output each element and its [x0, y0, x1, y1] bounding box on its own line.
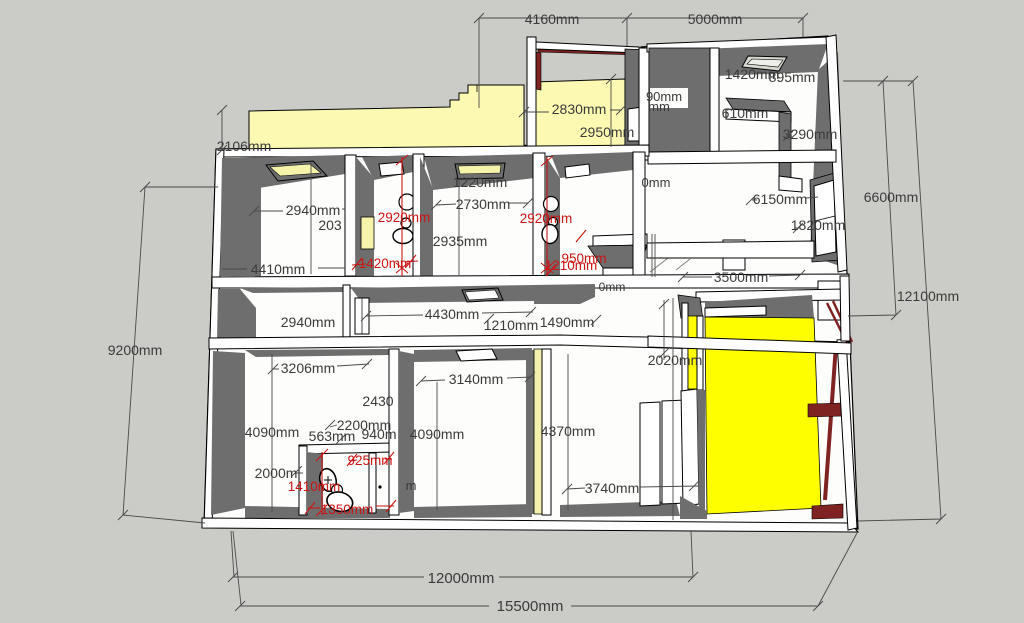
svg-text:3290mm: 3290mm: [783, 126, 837, 142]
svg-text:4430mm: 4430mm: [425, 306, 479, 322]
svg-text:4160mm: 4160mm: [525, 11, 579, 27]
svg-text:1220mm: 1220mm: [453, 174, 507, 190]
svg-text:2940mm: 2940mm: [286, 202, 340, 218]
svg-text:5000mm: 5000mm: [688, 11, 742, 27]
svg-text:12000mm: 12000mm: [428, 570, 495, 587]
svg-text:12100mm: 12100mm: [897, 288, 959, 304]
svg-text:6150mm: 6150mm: [753, 191, 807, 207]
svg-text:563mm: 563mm: [309, 428, 356, 444]
svg-text:2940mm: 2940mm: [281, 314, 335, 330]
svg-text:4090mm: 4090mm: [245, 424, 299, 440]
svg-text:2935mm: 2935mm: [433, 233, 487, 249]
svg-text:4090mm: 4090mm: [410, 426, 464, 442]
svg-text:3500mm: 3500mm: [714, 269, 768, 285]
svg-text:mm: mm: [648, 99, 670, 114]
svg-text:2020mm: 2020mm: [648, 352, 702, 368]
svg-text:2950mm: 2950mm: [580, 124, 634, 140]
svg-text:1410mm: 1410mm: [288, 479, 341, 494]
svg-text:1210mm: 1210mm: [545, 258, 598, 273]
svg-text:1490mm: 1490mm: [540, 314, 594, 330]
svg-text:3206mm: 3206mm: [281, 360, 335, 376]
svg-text:895mm: 895mm: [769, 69, 816, 85]
svg-text:940m: 940m: [361, 426, 396, 442]
svg-text:m: m: [406, 478, 417, 493]
svg-text:2920mm: 2920mm: [378, 210, 431, 225]
svg-text:1820mm: 1820mm: [791, 217, 845, 233]
svg-text:2730mm: 2730mm: [456, 196, 510, 212]
svg-text:0mm: 0mm: [642, 175, 671, 190]
svg-text:203: 203: [318, 217, 342, 233]
svg-text:925mm: 925mm: [347, 453, 392, 468]
svg-text:9200mm: 9200mm: [108, 342, 162, 358]
svg-text:6600mm: 6600mm: [864, 189, 918, 205]
svg-text:1420mm: 1420mm: [359, 256, 412, 271]
svg-text:2430: 2430: [362, 393, 393, 409]
svg-text:3140mm: 3140mm: [449, 371, 503, 387]
svg-text:610mm: 610mm: [722, 105, 769, 121]
svg-text:1350mm: 1350mm: [321, 502, 374, 517]
svg-text:2920mm: 2920mm: [520, 211, 573, 226]
svg-text:15500mm: 15500mm: [497, 598, 564, 615]
svg-text:2830mm: 2830mm: [552, 101, 606, 117]
svg-text:1210mm: 1210mm: [484, 317, 538, 333]
svg-text:3740mm: 3740mm: [585, 480, 639, 496]
svg-text:0mm: 0mm: [599, 280, 626, 294]
svg-text:4370mm: 4370mm: [541, 423, 595, 439]
svg-text:2106mm: 2106mm: [217, 138, 271, 154]
svg-text:4410mm: 4410mm: [251, 261, 305, 277]
